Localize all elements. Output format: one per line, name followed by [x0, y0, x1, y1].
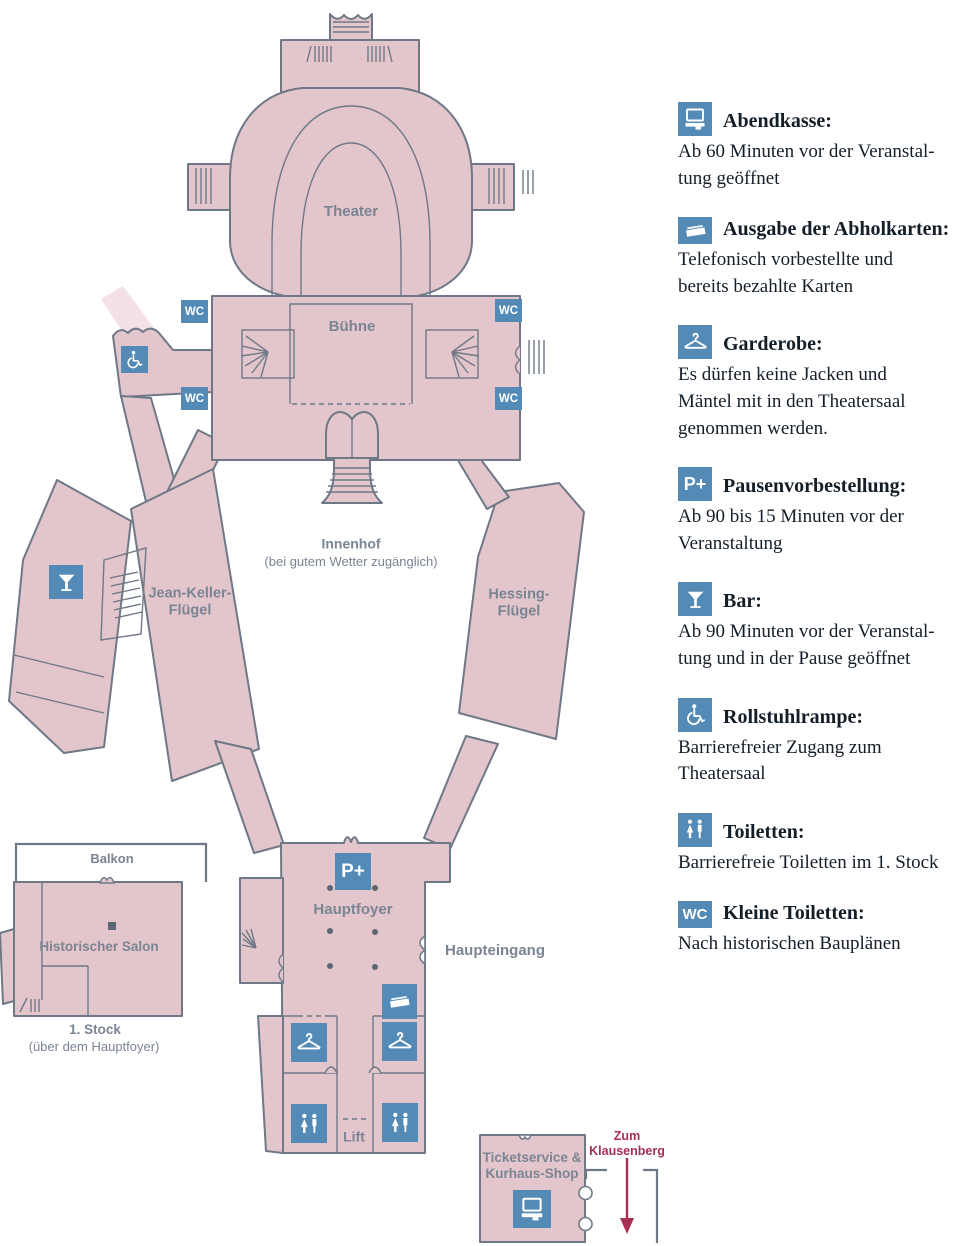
legend-title: Toiletten:	[723, 821, 804, 847]
toilets-icon	[382, 1103, 418, 1142]
legend-item-kleine-toiletten: WC Kleine Toiletten: Nach historischen B…	[678, 901, 968, 958]
legend: Abendkasse: Ab 60 Minuten vor der Verans…	[678, 102, 968, 983]
label-innenhof-sub: (bei gutem Wetter zugänglich)	[264, 554, 437, 570]
legend-item-abholkarten: Ausgabe der Abholkarten: Telefonisch vor…	[678, 217, 968, 300]
legend-item-abendkasse: Abendkasse: Ab 60 Minuten vor der Verans…	[678, 102, 968, 192]
legend-body: Barrierefreie Toiletten im 1. Stock	[678, 850, 968, 877]
wc-icon: WC	[678, 901, 712, 928]
bar-icon	[678, 582, 712, 616]
legend-title: Ausgabe der Abholkarten:	[723, 218, 949, 244]
hanger-icon	[678, 325, 712, 359]
label-lift: Lift	[343, 1129, 365, 1146]
legend-title: Kleine Toiletten:	[723, 902, 865, 928]
toilets-icon	[678, 813, 712, 847]
label-innenhof: Innenhof	[321, 536, 380, 553]
wheelchair-icon	[121, 346, 148, 373]
floorplan-page: Theater Bühne Innenhof (bei gutem Wetter…	[0, 0, 968, 1246]
label-jean-keller-fluegel: Jean-Keller- Flügel	[148, 586, 231, 621]
legend-item-bar: Bar: Ab 90 Minuten vor der Veranstal- tu…	[678, 582, 968, 672]
wc-icon: WC	[495, 299, 522, 322]
label-zum-klausenberg: Zum Klausenberg	[589, 1129, 665, 1159]
label-hessing-fluegel: Hessing- Flügel	[488, 587, 549, 622]
legend-body: Ab 90 bis 15 Minuten vor der Veranstaltu…	[678, 504, 968, 557]
floorplan-drawing	[0, 0, 660, 1246]
legend-title: Abendkasse:	[723, 110, 832, 136]
label-ticketservice-shop: Ticketservice & Kurhaus-Shop	[483, 1150, 582, 1182]
legend-body: Telefonisch vorbestellte und bereits bez…	[678, 247, 968, 300]
legend-title: Bar:	[723, 590, 762, 616]
wc-icon: WC	[181, 300, 208, 323]
legend-body: Ab 90 Minuten vor der Veranstal- tung un…	[678, 619, 968, 672]
cash-register-icon	[513, 1190, 551, 1228]
label-1-stock-sub: (über dem Hauptfoyer)	[29, 1039, 160, 1055]
p-plus-icon: P+	[335, 853, 371, 890]
label-haupteingang: Haupteingang	[445, 942, 545, 960]
label-balkon: Balkon	[90, 851, 133, 867]
bar-icon	[49, 565, 83, 599]
wc-icon: WC	[495, 387, 522, 410]
tickets-icon	[382, 984, 417, 1019]
tickets-icon	[678, 217, 712, 244]
legend-body: Ab 60 Minuten vor der Veranstal- tung ge…	[678, 139, 968, 192]
legend-item-pausenvorbestellung: P+ Pausenvorbestellung: Ab 90 bis 15 Min…	[678, 467, 968, 557]
legend-title: Pausenvorbestellung:	[723, 475, 906, 501]
legend-title: Garderobe:	[723, 333, 823, 359]
label-1-stock: 1. Stock	[69, 1022, 121, 1038]
legend-body: Es dürfen keine Jacken und Mäntel mit in…	[678, 362, 968, 442]
wheelchair-icon	[678, 698, 712, 732]
label-theater: Theater	[324, 203, 378, 221]
hanger-icon	[291, 1023, 327, 1062]
legend-item-garderobe: Garderobe: Es dürfen keine Jacken und Mä…	[678, 325, 968, 442]
label-historischer-salon: Historischer Salon	[39, 939, 158, 955]
legend-body: Barrierefreier Zugang zum Theatersaal	[678, 735, 968, 788]
cash-register-icon	[678, 102, 712, 136]
p-plus-icon: P+	[678, 467, 712, 501]
legend-item-toiletten: Toiletten: Barrierefreie Toiletten im 1.…	[678, 813, 968, 877]
label-buehne: Bühne	[329, 318, 376, 336]
wc-icon: WC	[181, 387, 208, 410]
legend-title: Rollstuhlrampe:	[723, 706, 863, 732]
legend-item-rollstuhlrampe: Rollstuhlrampe: Barrierefreier Zugang zu…	[678, 698, 968, 788]
toilets-icon	[291, 1104, 327, 1143]
legend-body: Nach historischen Bauplänen	[678, 931, 968, 958]
hanger-icon	[382, 1022, 417, 1061]
label-hauptfoyer: Hauptfoyer	[313, 901, 392, 919]
